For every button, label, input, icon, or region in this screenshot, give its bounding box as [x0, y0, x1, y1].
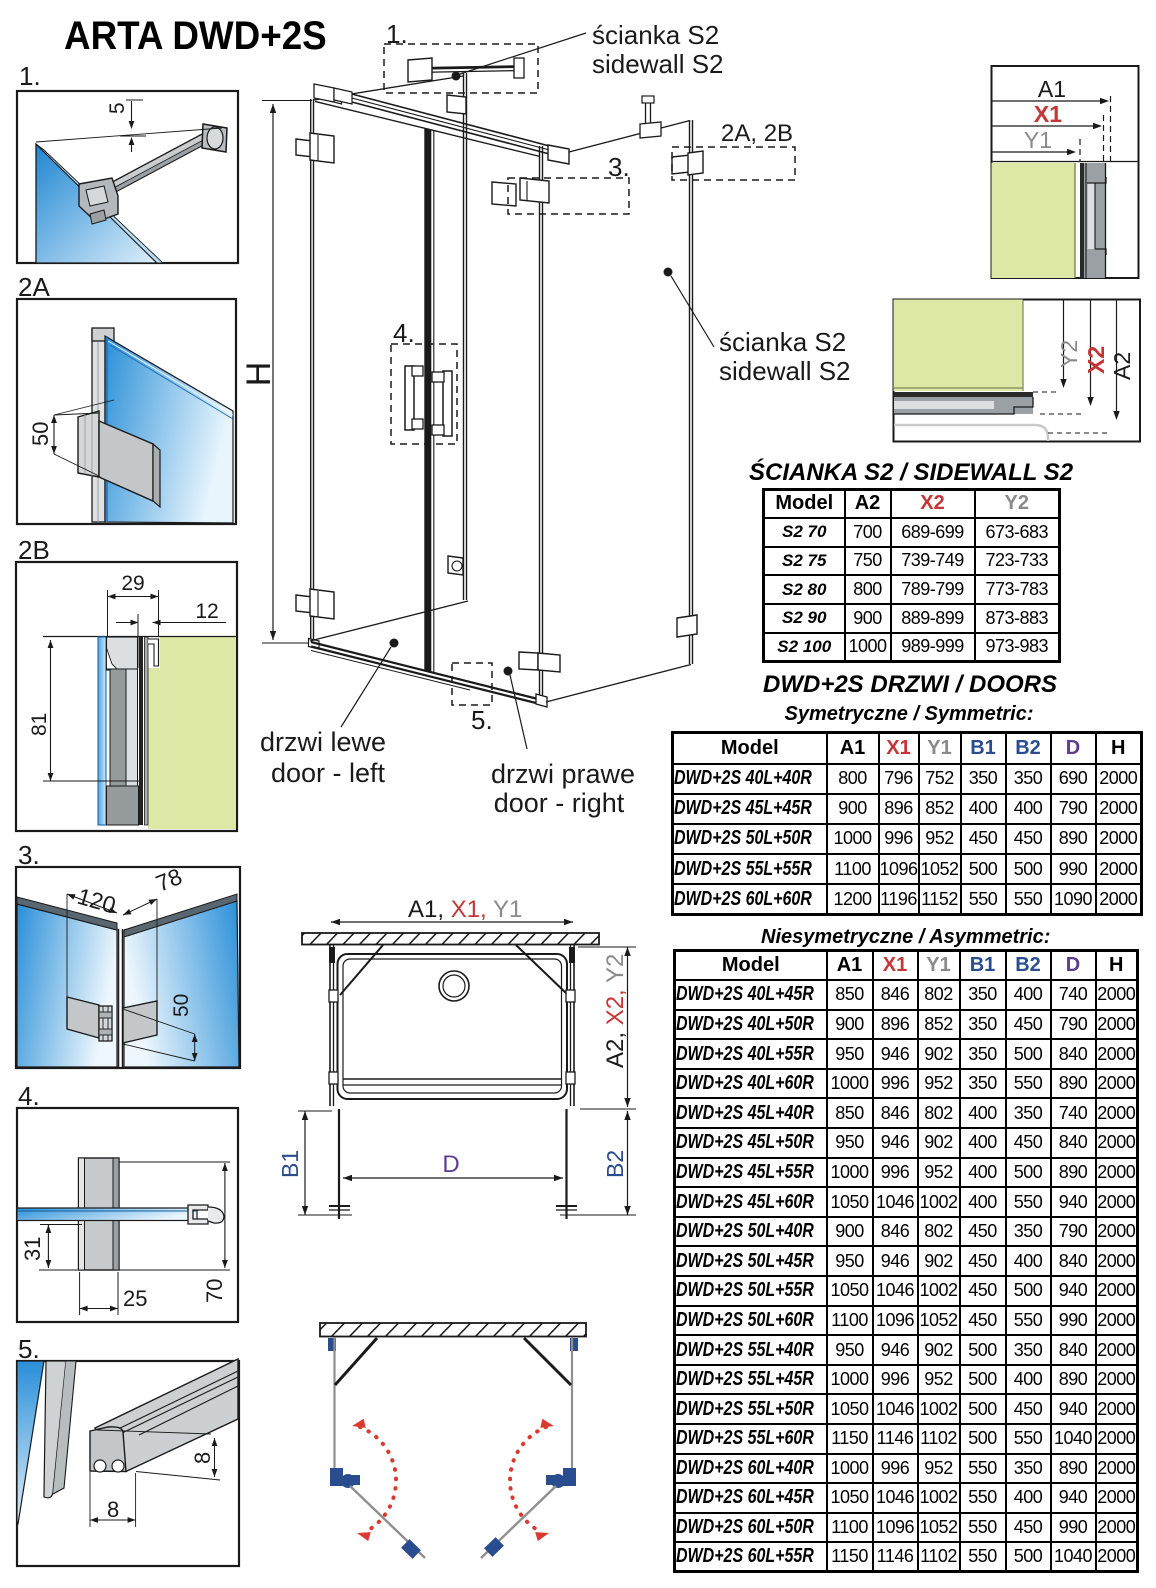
svg-text:120: 120 [75, 883, 119, 919]
svg-text:A1: A1 [1038, 76, 1066, 102]
svg-text:door - right: door - right [494, 788, 625, 818]
svg-text:sidewall S2: sidewall S2 [719, 356, 851, 386]
svg-text:A1, X1, Y1: A1, X1, Y1 [408, 896, 522, 923]
svg-text:2A: 2A [18, 272, 50, 302]
svg-text:1.: 1. [19, 61, 41, 91]
svg-text:50: 50 [28, 422, 53, 446]
svg-text:8: 8 [190, 1452, 215, 1464]
svg-text:door - left: door - left [271, 758, 386, 788]
svg-text:H: H [240, 362, 278, 387]
svg-text:5.: 5. [18, 1334, 40, 1364]
svg-text:3.: 3. [18, 840, 40, 870]
svg-text:X1: X1 [1034, 101, 1062, 127]
svg-text:31: 31 [20, 1237, 45, 1261]
svg-text:Y2: Y2 [1056, 340, 1082, 368]
svg-text:A2: A2 [1109, 352, 1135, 380]
svg-text:29: 29 [121, 572, 144, 595]
svg-text:B2: B2 [602, 1150, 628, 1178]
svg-text:ścianka S2: ścianka S2 [592, 20, 719, 50]
svg-text:A2, X2, Y2: A2, X2, Y2 [602, 954, 629, 1068]
svg-text:X2: X2 [1083, 346, 1109, 374]
svg-text:50: 50 [170, 994, 193, 1017]
svg-text:ścianka S2: ścianka S2 [719, 327, 846, 357]
svg-text:2A, 2B: 2A, 2B [721, 120, 793, 147]
svg-text:12: 12 [195, 600, 218, 623]
svg-text:B1: B1 [277, 1150, 303, 1178]
svg-text:drzwi prawe: drzwi prawe [491, 759, 635, 789]
svg-text:sidewall S2: sidewall S2 [592, 49, 724, 79]
svg-text:70: 70 [202, 1279, 227, 1303]
svg-text:81: 81 [28, 713, 51, 736]
svg-text:4.: 4. [393, 318, 415, 348]
svg-text:4.: 4. [18, 1081, 40, 1111]
svg-text:3.: 3. [608, 152, 630, 182]
svg-text:D: D [442, 1151, 459, 1178]
svg-text:5.: 5. [471, 705, 493, 735]
svg-text:drzwi lewe: drzwi lewe [260, 727, 386, 757]
svg-text:25: 25 [123, 1286, 147, 1311]
svg-text:2B: 2B [18, 535, 50, 565]
svg-text:1.: 1. [386, 19, 408, 49]
svg-text:5: 5 [106, 102, 129, 114]
svg-text:Y1: Y1 [1024, 127, 1052, 153]
svg-text:8: 8 [107, 1497, 119, 1522]
